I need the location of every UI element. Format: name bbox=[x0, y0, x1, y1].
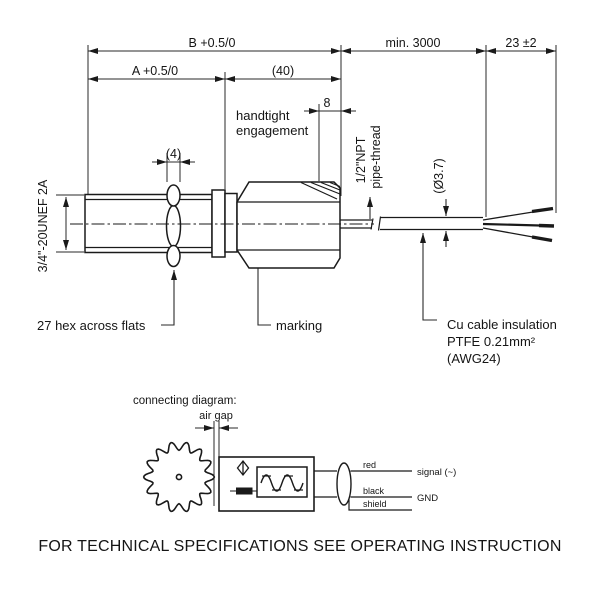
dim-4: (4) bbox=[166, 147, 181, 161]
sensor-body bbox=[70, 182, 554, 268]
cable-cross-section bbox=[337, 463, 351, 505]
cable bbox=[340, 217, 483, 231]
dim-b: B +0.5/0 bbox=[189, 36, 236, 50]
dim-min3000: min. 3000 bbox=[386, 36, 441, 50]
label-cable-2: PTFE 0.21mm² bbox=[447, 334, 536, 349]
gear-wheel bbox=[144, 443, 215, 512]
wire-ends bbox=[483, 209, 554, 241]
jam-nut bbox=[167, 185, 181, 267]
threaded-stud bbox=[85, 195, 212, 253]
dim-40: (40) bbox=[272, 64, 294, 78]
label-hex-flats: 27 hex across flats bbox=[37, 318, 146, 333]
label-npt-1: 1/2"NPT bbox=[354, 136, 368, 183]
connecting-diagram-title: connecting diagram: bbox=[133, 395, 237, 407]
dim-a: A +0.5/0 bbox=[132, 64, 178, 78]
label-handtight-1: handtight bbox=[236, 108, 290, 123]
label-cable-3: (AWG24) bbox=[447, 351, 501, 366]
label-handtight-2: engagement bbox=[236, 123, 309, 138]
dim-8: 8 bbox=[324, 96, 331, 110]
sensor-drawing-svg: B +0.5/0 min. 3000 23 ±2 A +0.5/0 (40) 8… bbox=[0, 0, 600, 600]
label-thread: 3/4"-20UNEF 2A bbox=[36, 179, 50, 272]
gnd-label: GND bbox=[417, 493, 438, 504]
hex-housing bbox=[237, 182, 340, 268]
wire-shield-label: shield bbox=[363, 499, 387, 509]
label-marking: marking bbox=[276, 318, 322, 333]
wire-black-label: black bbox=[363, 486, 385, 496]
connecting-diagram: connecting diagram: air gap bbox=[133, 395, 456, 511]
dim-wire-length: 23 ±2 bbox=[505, 36, 536, 50]
signal-symbol-icon bbox=[257, 467, 307, 497]
neck bbox=[225, 194, 237, 253]
wire-red-label: red bbox=[363, 460, 376, 470]
label-npt-2: pipe-thread bbox=[369, 125, 383, 188]
technical-drawing-page: B +0.5/0 min. 3000 23 ±2 A +0.5/0 (40) 8… bbox=[0, 0, 600, 600]
flange bbox=[212, 190, 225, 257]
footer-note: FOR TECHNICAL SPECIFICATIONS SEE OPERATI… bbox=[38, 538, 561, 555]
signal-label: signal (~) bbox=[417, 467, 456, 478]
label-cable-1: Cu cable insulation bbox=[447, 317, 557, 332]
air-gap-label: air gap bbox=[199, 410, 233, 422]
label-cable-dia: (Ø3.7) bbox=[432, 158, 446, 193]
